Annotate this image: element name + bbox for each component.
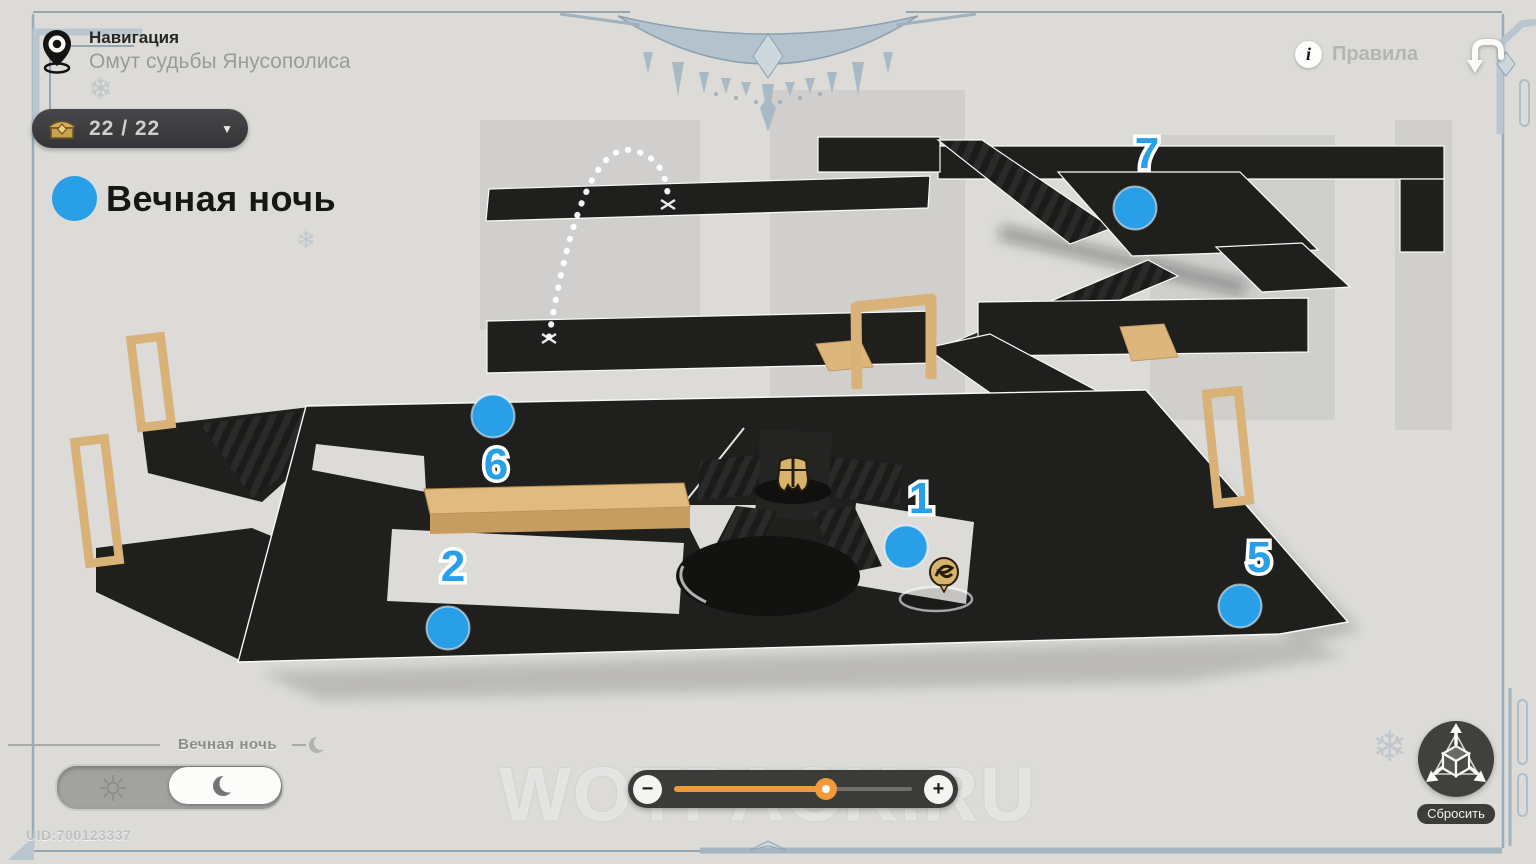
- plus-icon: +: [933, 778, 945, 801]
- zoom-handle[interactable]: [815, 778, 837, 800]
- chest-count: 22 / 22: [89, 117, 221, 141]
- divider: [8, 744, 160, 746]
- legend-label: Вечная ночь: [106, 178, 336, 220]
- zoom-out-button[interactable]: −: [633, 775, 662, 804]
- map-marker-1[interactable]: [885, 526, 928, 569]
- header: Навигация Омут судьбы Янусополиса: [40, 28, 351, 74]
- map-marker-label-6: 6: [484, 440, 508, 489]
- map-marker-label-7: 7: [1135, 129, 1159, 178]
- rules-label: Правила: [1332, 43, 1418, 66]
- zoom-slider[interactable]: − +: [628, 770, 958, 808]
- uid-text: UID:700123337: [26, 827, 131, 843]
- moon-icon: [308, 735, 328, 755]
- reset-view-button[interactable]: [1418, 721, 1494, 797]
- day-night-toggle[interactable]: [55, 764, 284, 811]
- map-marker-5[interactable]: [1219, 585, 1262, 628]
- back-button[interactable]: [1463, 33, 1511, 77]
- rules-button[interactable]: i Правила: [1295, 41, 1418, 68]
- moon-icon: [210, 771, 240, 801]
- game-screen: 12567 WOTPACK.RU: [0, 0, 1536, 864]
- zoom-track-fill: [674, 786, 826, 792]
- map-marker-label-5: 5: [1247, 533, 1271, 582]
- chest-icon: [47, 116, 77, 141]
- map-marker-7[interactable]: [1114, 187, 1157, 230]
- info-icon: i: [1295, 41, 1322, 68]
- reset-label: Сбросить: [1417, 804, 1495, 824]
- map-marker-label-1: 1: [909, 474, 933, 523]
- nav-label: Навигация: [89, 28, 351, 48]
- legend-marker-dot: [52, 176, 97, 221]
- zoom-track[interactable]: [674, 787, 912, 791]
- minus-icon: −: [642, 778, 654, 801]
- chevron-down-icon: ▼: [221, 122, 233, 136]
- chest-counter-dropdown[interactable]: 22 / 22 ▼: [32, 109, 248, 148]
- main-floor: [96, 390, 1348, 662]
- map-legend: Вечная ночь: [52, 176, 336, 221]
- mode-label-row: Вечная ночь: [8, 736, 338, 754]
- wood-bench: [424, 483, 690, 534]
- sun-icon: [99, 774, 127, 802]
- night-option-knob[interactable]: [169, 767, 281, 804]
- map-marker-label-2: 2: [441, 542, 465, 591]
- zoom-in-button[interactable]: +: [924, 775, 953, 804]
- mode-label: Вечная ночь: [178, 736, 277, 753]
- location-title: Омут судьбы Янусополиса: [89, 50, 351, 74]
- back-arrow-icon: [1463, 33, 1511, 77]
- map-marker-6[interactable]: [472, 395, 515, 438]
- map-marker-2[interactable]: [427, 607, 470, 650]
- divider: [292, 744, 306, 746]
- location-pin-icon: [40, 28, 74, 74]
- day-option[interactable]: [57, 766, 170, 809]
- cube-reset-icon: [1418, 721, 1494, 797]
